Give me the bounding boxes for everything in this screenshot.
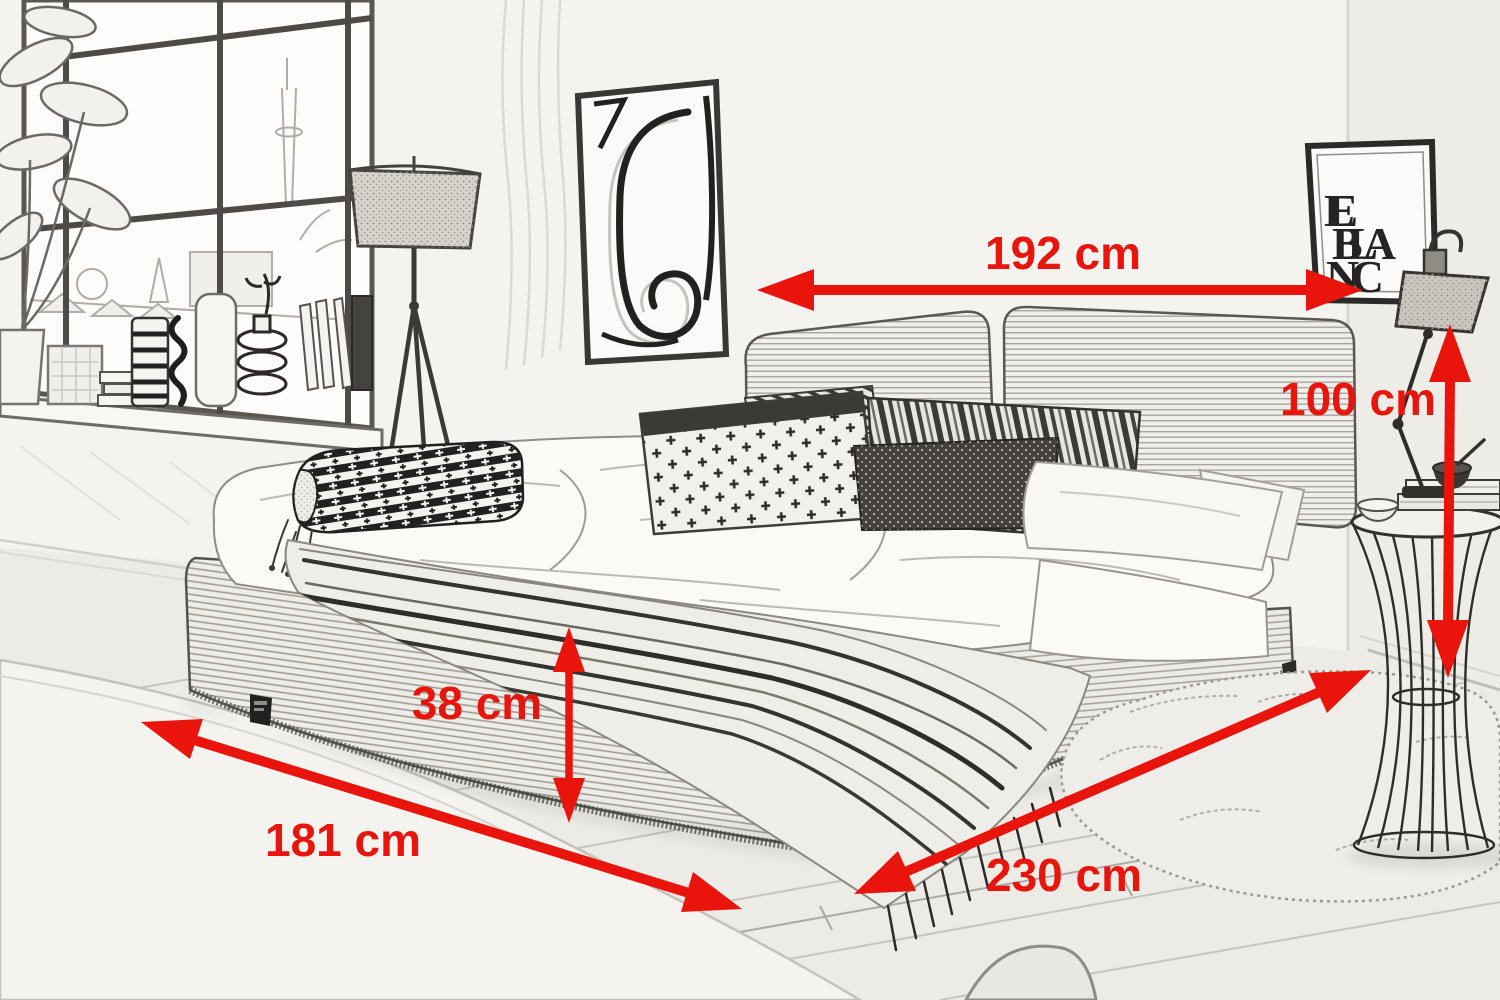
bedroom-sketch-scene: LE BLA NC <box>0 0 1500 1000</box>
product-dimension-diagram: LE BLA NC <box>0 0 1500 1000</box>
abstract-wall-art <box>578 82 726 362</box>
dimension-label-bed-width: 192 cm <box>985 230 1141 276</box>
dimension-label-frame-height: 38 cm <box>412 680 542 726</box>
dimension-label-headboard-height: 100 cm <box>1280 376 1436 422</box>
dimension-label-side-length: 230 cm <box>986 852 1142 898</box>
dimension-label-front-width: 181 cm <box>265 817 421 863</box>
pillow-bolster <box>293 442 523 532</box>
